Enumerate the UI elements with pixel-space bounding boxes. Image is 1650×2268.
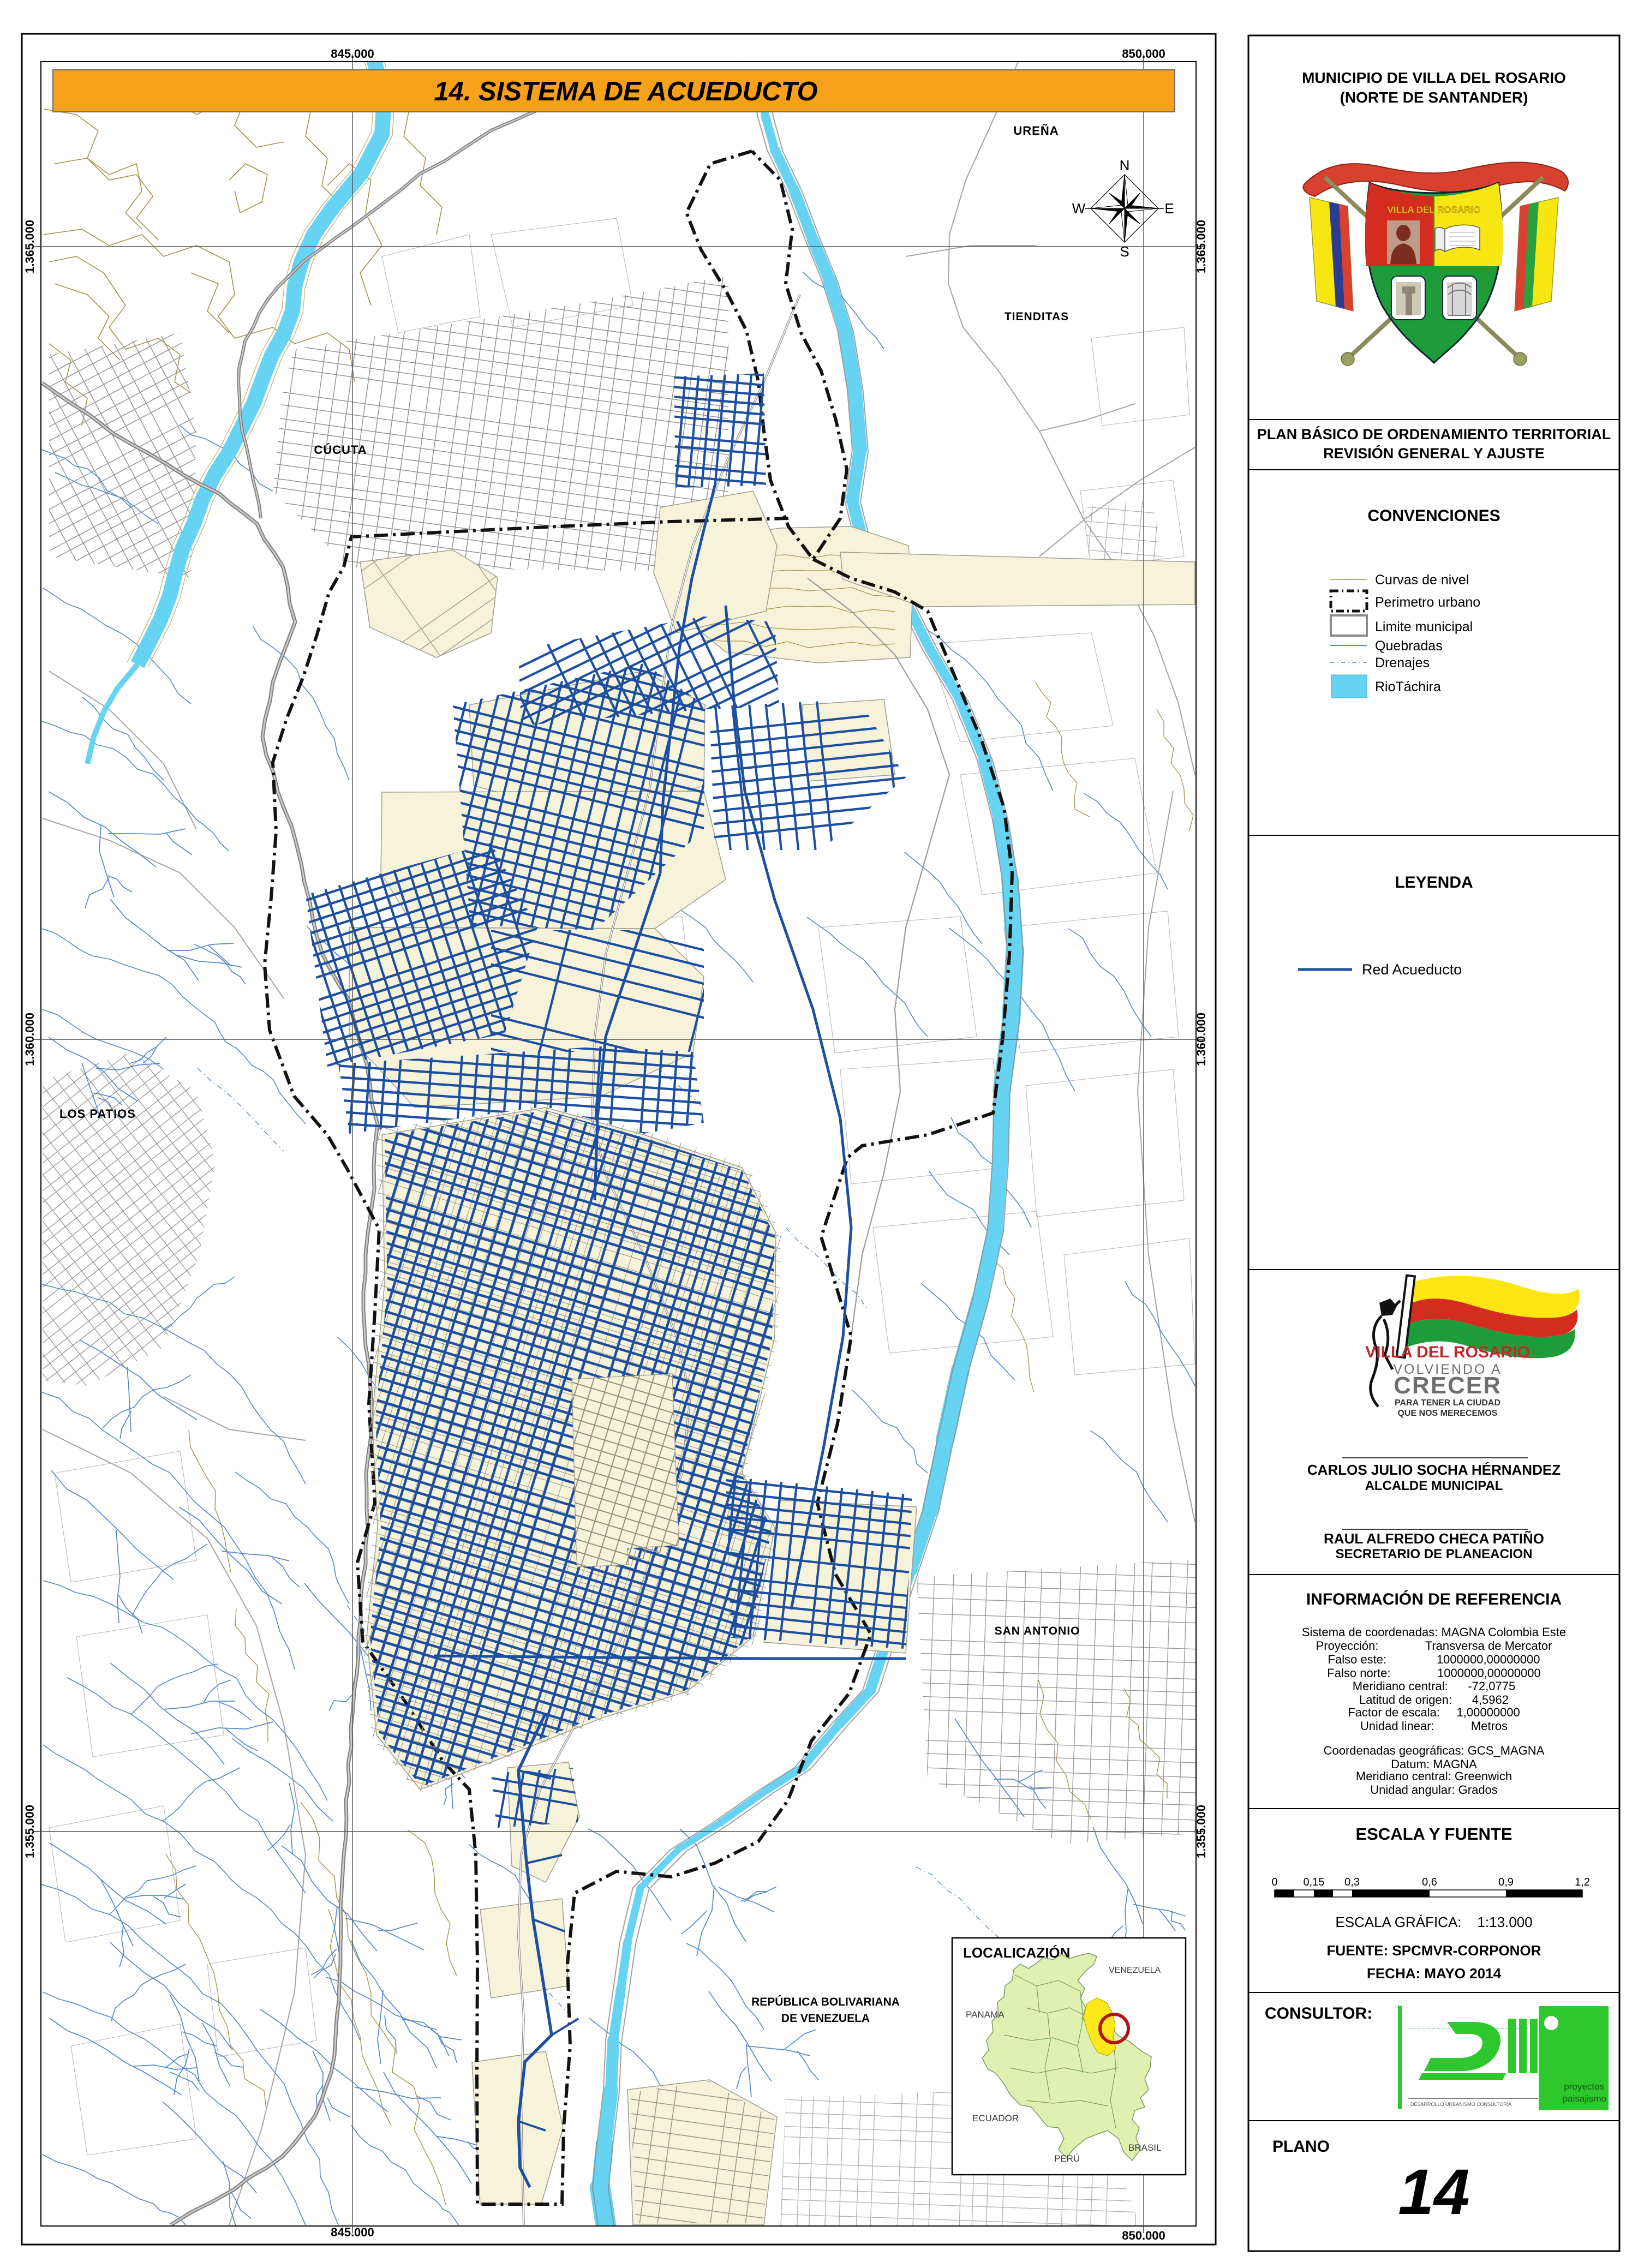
svg-text:ALCALDE MUNICIPAL: ALCALDE MUNICIPAL xyxy=(1365,1479,1503,1493)
svg-text:DESARROLLO URBANISMO CONSULTOR: DESARROLLO URBANISMO CONSULTORIA xyxy=(1410,2102,1511,2107)
svg-text:FUENTE: SPCMVR-CORPONOR: FUENTE: SPCMVR-CORPONOR xyxy=(1327,1942,1541,1959)
svg-text:ESCALA Y FUENTE: ESCALA Y FUENTE xyxy=(1355,1824,1512,1844)
svg-text:Curvas de nivel: Curvas de nivel xyxy=(1375,572,1469,588)
svg-text:Unidad linear: Metro: Unidad linear: Metros xyxy=(1360,1719,1508,1733)
svg-text:W: W xyxy=(1072,200,1086,217)
svg-text:1.365.000: 1.365.000 xyxy=(23,220,37,273)
svg-text:E: E xyxy=(1164,200,1174,217)
svg-text:Limite municipal: Limite municipal xyxy=(1375,619,1473,635)
svg-text:SAN ANTONIO: SAN ANTONIO xyxy=(995,1625,1080,1637)
svg-text:1.360.000: 1.360.000 xyxy=(1194,1013,1208,1066)
svg-text:1.355.000: 1.355.000 xyxy=(23,1805,37,1858)
svg-text:Quebradas: Quebradas xyxy=(1375,638,1443,654)
svg-text:0,15: 0,15 xyxy=(1304,1876,1325,1888)
svg-text:1.355.000: 1.355.000 xyxy=(1194,1805,1208,1858)
svg-text:DE VENEZUELA: DE VENEZUELA xyxy=(781,2012,870,2025)
svg-text:0,3: 0,3 xyxy=(1344,1876,1360,1888)
svg-text:PARA TENER LA CIUDAD: PARA TENER LA CIUDAD xyxy=(1395,1398,1500,1408)
svg-text:TIENDITAS: TIENDITAS xyxy=(1005,310,1069,323)
svg-text:CONSULTOR:: CONSULTOR: xyxy=(1265,2004,1372,2022)
svg-text:0,6: 0,6 xyxy=(1422,1876,1437,1888)
svg-text:Falso este: 1000: Falso este: 1000000,00000000 xyxy=(1328,1653,1540,1666)
svg-text:VILLA DEL ROSARIO: VILLA DEL ROSARIO xyxy=(1388,205,1481,215)
svg-text:1.365.000: 1.365.000 xyxy=(1194,220,1208,273)
svg-text:proyectos: proyectos xyxy=(1564,2081,1604,2092)
svg-text:Drenajes: Drenajes xyxy=(1375,655,1430,671)
svg-text:REVISIÓN GENERAL Y AJUSTE: REVISIÓN GENERAL Y AJUSTE xyxy=(1323,445,1545,462)
svg-text:ESCALA GRÁFICA: 1:13.000: ESCALA GRÁFICA: 1:13.000 xyxy=(1335,1914,1532,1930)
svg-text:Factor de escala: 1,000000: Factor de escala: 1,00000000 xyxy=(1348,1706,1520,1719)
svg-text:LOS PATIOS: LOS PATIOS xyxy=(59,1107,136,1121)
svg-text:0: 0 xyxy=(1271,1876,1277,1888)
svg-text:Meridiano central: Greenwich: Meridiano central: Greenwich xyxy=(1356,1769,1512,1783)
svg-text:Sistema de coordenadas: MAGNA: Sistema de coordenadas: MAGNA Colombia E… xyxy=(1302,1625,1566,1639)
svg-text:0,9: 0,9 xyxy=(1498,1876,1514,1888)
svg-text:Unidad angular: Grados: Unidad angular: Grados xyxy=(1370,1783,1498,1797)
svg-text:LOCALICAZIÓN: LOCALICAZIÓN xyxy=(963,1944,1070,1961)
svg-text:INFORMACIÓN DE REFERENCIA: INFORMACIÓN DE REFERENCIA xyxy=(1306,1590,1562,1608)
svg-text:CONVENCIONES: CONVENCIONES xyxy=(1367,507,1500,525)
svg-text:845.000: 845.000 xyxy=(331,2225,374,2239)
svg-text:REPÚBLICA BOLIVARIANA: REPÚBLICA BOLIVARIANA xyxy=(751,1995,900,2008)
svg-text:FECHA: MAYO 2014: FECHA: MAYO 2014 xyxy=(1367,1965,1502,1982)
svg-text:S: S xyxy=(1120,243,1129,260)
svg-text:PERÚ: PERÚ xyxy=(1054,2153,1080,2164)
svg-text:CARLOS JULIO SOCHA HÉRNANDEZ: CARLOS JULIO SOCHA HÉRNANDEZ xyxy=(1307,1462,1561,1478)
svg-text:PANAMA: PANAMA xyxy=(966,2009,1005,2020)
svg-text:845.000: 845.000 xyxy=(331,47,374,61)
svg-text:Perimetro urbano: Perimetro urbano xyxy=(1375,595,1480,610)
svg-text:Coordenadas geográficas: GCS_M: Coordenadas geográficas: GCS_MAGNA xyxy=(1324,1744,1545,1757)
svg-text:MUNICIPIO DE VILLA DEL ROSARIO: MUNICIPIO DE VILLA DEL ROSARIO xyxy=(1302,69,1566,86)
svg-text:VILLA DEL ROSARIO: VILLA DEL ROSARIO xyxy=(1365,1343,1530,1361)
svg-text:Latitud de origen: 4,5962: Latitud de origen: 4,5962 xyxy=(1359,1693,1509,1707)
svg-text:VENEZUELA: VENEZUELA xyxy=(1109,1966,1161,1975)
svg-text:PLANO: PLANO xyxy=(1272,2138,1330,2156)
svg-text:LEYENDA: LEYENDA xyxy=(1395,873,1473,891)
svg-text:RioTáchira: RioTáchira xyxy=(1375,679,1441,695)
svg-text:N: N xyxy=(1120,157,1130,173)
svg-text:1.360.000: 1.360.000 xyxy=(23,1013,37,1066)
svg-text:QUE NOS MERECEMOS: QUE NOS MERECEMOS xyxy=(1397,1409,1497,1418)
svg-text:BRASIL: BRASIL xyxy=(1128,2143,1161,2153)
svg-text:850.000: 850.000 xyxy=(1122,2229,1165,2242)
svg-text:PLAN BÁSICO DE ORDENAMIENTO TE: PLAN BÁSICO DE ORDENAMIENTO TERRITORIAL xyxy=(1257,426,1611,442)
svg-text:(NORTE DE SANTANDER): (NORTE DE SANTANDER) xyxy=(1340,89,1528,106)
svg-text:CÚCUTA: CÚCUTA xyxy=(314,443,367,457)
svg-text:Proyección: Trans: Proyección: Transversa de Mercator xyxy=(1316,1639,1552,1653)
svg-text:14: 14 xyxy=(1398,2156,1469,2228)
svg-text:paisajismo: paisajismo xyxy=(1563,2093,1606,2104)
svg-text:Falso norte: 1000: Falso norte: 1000000,00000000 xyxy=(1327,1666,1540,1680)
svg-text:14. SISTEMA DE ACUEDUCTO: 14. SISTEMA DE ACUEDUCTO xyxy=(434,77,817,106)
svg-text:Meridiano central: -72,07: Meridiano central: -72,0775 xyxy=(1353,1679,1515,1693)
svg-text:ECUADOR: ECUADOR xyxy=(972,2113,1019,2123)
svg-text:UREÑA: UREÑA xyxy=(1013,124,1059,137)
svg-text:850.000: 850.000 xyxy=(1122,47,1165,61)
svg-text:RAUL ALFREDO CHECA PATIÑO: RAUL ALFREDO CHECA PATIÑO xyxy=(1324,1530,1544,1547)
svg-text:SECRETARIO DE PLANEACION: SECRETARIO DE PLANEACION xyxy=(1336,1547,1533,1561)
svg-text:Red Acueducto: Red Acueducto xyxy=(1362,961,1462,978)
svg-text:CRECER: CRECER xyxy=(1394,1372,1502,1399)
svg-text:1,2: 1,2 xyxy=(1575,1876,1590,1888)
